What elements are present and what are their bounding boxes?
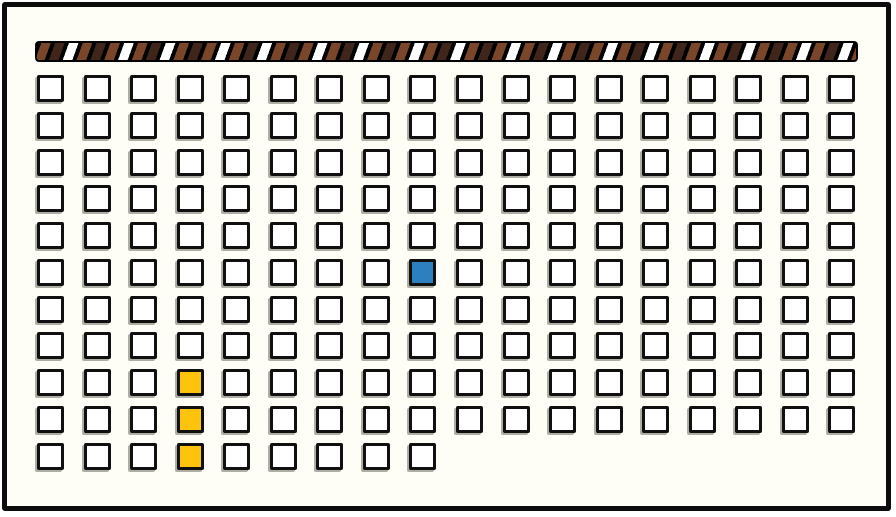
grid-cell[interactable]: [177, 296, 204, 323]
grid-cell[interactable]: [456, 75, 483, 102]
grid-cell[interactable]: [735, 112, 762, 139]
grid-cell[interactable]: [735, 222, 762, 249]
grid-cell[interactable]: [223, 332, 250, 359]
grid-cell[interactable]: [642, 222, 669, 249]
grid-cell[interactable]: [549, 222, 576, 249]
grid-cell[interactable]: [782, 332, 809, 359]
grid-cell[interactable]: [270, 185, 297, 212]
grid-cell[interactable]: [270, 259, 297, 286]
grid-cell[interactable]: [596, 112, 623, 139]
grid-cell[interactable]: [735, 75, 762, 102]
grid-cell[interactable]: [828, 296, 855, 323]
grid-cell[interactable]: [409, 406, 436, 433]
grid-cell[interactable]: [782, 406, 809, 433]
grid-cell[interactable]: [363, 149, 390, 176]
grid-cell[interactable]: [456, 149, 483, 176]
grid-cell[interactable]: [223, 259, 250, 286]
grid-cell[interactable]: [503, 222, 530, 249]
grid-cell[interactable]: [270, 296, 297, 323]
grid-cell[interactable]: [37, 112, 64, 139]
grid-cell[interactable]: [596, 369, 623, 396]
grid-cell[interactable]: [735, 259, 762, 286]
grid-cell[interactable]: [130, 149, 157, 176]
grid-cell[interactable]: [223, 185, 250, 212]
grid-cell[interactable]: [37, 369, 64, 396]
grid-cell[interactable]: [503, 75, 530, 102]
grid-cell[interactable]: [503, 185, 530, 212]
grid-cell[interactable]: [223, 406, 250, 433]
grid-cell[interactable]: [363, 75, 390, 102]
grid-cell[interactable]: [549, 259, 576, 286]
grid-cell[interactable]: [223, 443, 250, 470]
grid-cell[interactable]: [735, 406, 762, 433]
grid-cell[interactable]: [223, 222, 250, 249]
grid-cell[interactable]: [642, 112, 669, 139]
grid-cell[interactable]: [828, 332, 855, 359]
grid-cell[interactable]: [37, 443, 64, 470]
grid-cell[interactable]: [316, 332, 343, 359]
grid-cell[interactable]: [503, 149, 530, 176]
grid-cell[interactable]: [456, 332, 483, 359]
grid-cell[interactable]: [828, 112, 855, 139]
grid-cell[interactable]: [177, 149, 204, 176]
grid-cell[interactable]: [549, 149, 576, 176]
yellow-cell[interactable]: [177, 369, 204, 396]
grid-cell[interactable]: [130, 222, 157, 249]
grid-cell[interactable]: [84, 332, 111, 359]
grid-cell[interactable]: [316, 406, 343, 433]
grid-cell[interactable]: [177, 75, 204, 102]
grid-cell[interactable]: [456, 259, 483, 286]
grid-cell[interactable]: [782, 369, 809, 396]
grid-cell[interactable]: [503, 259, 530, 286]
grid-cell[interactable]: [642, 296, 669, 323]
grid-cell[interactable]: [223, 112, 250, 139]
yellow-cell[interactable]: [177, 406, 204, 433]
grid-cell[interactable]: [223, 296, 250, 323]
grid-cell[interactable]: [130, 332, 157, 359]
grid-cell[interactable]: [130, 185, 157, 212]
grid-cell[interactable]: [37, 149, 64, 176]
grid-cell[interactable]: [409, 369, 436, 396]
grid-cell[interactable]: [270, 406, 297, 433]
grid-cell[interactable]: [596, 259, 623, 286]
grid-cell[interactable]: [84, 406, 111, 433]
grid-cell[interactable]: [642, 406, 669, 433]
grid-cell[interactable]: [363, 332, 390, 359]
grid-cell[interactable]: [689, 149, 716, 176]
grid-cell[interactable]: [84, 259, 111, 286]
grid-cell[interactable]: [642, 185, 669, 212]
grid-cell[interactable]: [363, 406, 390, 433]
grid-cell[interactable]: [689, 332, 716, 359]
grid-cell[interactable]: [549, 406, 576, 433]
grid-cell[interactable]: [735, 185, 762, 212]
grid-cell[interactable]: [503, 369, 530, 396]
grid-cell[interactable]: [689, 259, 716, 286]
grid-cell[interactable]: [689, 112, 716, 139]
grid-cell[interactable]: [735, 369, 762, 396]
grid-cell[interactable]: [735, 332, 762, 359]
grid-cell[interactable]: [689, 222, 716, 249]
grid-cell[interactable]: [828, 369, 855, 396]
grid-cell[interactable]: [782, 259, 809, 286]
grid-cell[interactable]: [130, 443, 157, 470]
grid-cell[interactable]: [130, 112, 157, 139]
grid-cell[interactable]: [84, 149, 111, 176]
grid-cell[interactable]: [409, 296, 436, 323]
grid-cell[interactable]: [177, 332, 204, 359]
grid-cell[interactable]: [84, 112, 111, 139]
grid-cell[interactable]: [735, 296, 762, 323]
grid-cell[interactable]: [735, 149, 762, 176]
blue-cell[interactable]: [409, 259, 436, 286]
grid-cell[interactable]: [37, 332, 64, 359]
grid-cell[interactable]: [596, 185, 623, 212]
grid-cell[interactable]: [37, 259, 64, 286]
grid-cell[interactable]: [37, 75, 64, 102]
grid-cell[interactable]: [363, 259, 390, 286]
page: [0, 0, 896, 517]
grid-cell[interactable]: [84, 443, 111, 470]
grid-cell[interactable]: [642, 75, 669, 102]
grid-cell[interactable]: [503, 112, 530, 139]
grid-cell[interactable]: [270, 222, 297, 249]
grid-cell[interactable]: [549, 112, 576, 139]
grid-cell[interactable]: [316, 259, 343, 286]
grid-cell[interactable]: [689, 406, 716, 433]
grid-cell[interactable]: [270, 75, 297, 102]
grid-cell[interactable]: [270, 149, 297, 176]
grid-cell[interactable]: [596, 296, 623, 323]
grid-cell[interactable]: [456, 296, 483, 323]
grid-cell[interactable]: [409, 149, 436, 176]
grid-cell[interactable]: [84, 185, 111, 212]
grid-cell[interactable]: [316, 112, 343, 139]
grid-cell[interactable]: [456, 406, 483, 433]
grid-cell[interactable]: [828, 222, 855, 249]
grid-cell[interactable]: [130, 369, 157, 396]
grid-cell[interactable]: [549, 185, 576, 212]
grid-cell[interactable]: [130, 406, 157, 433]
grid-cell[interactable]: [596, 75, 623, 102]
grid-cell[interactable]: [828, 185, 855, 212]
grid-cell[interactable]: [177, 112, 204, 139]
grid-cell[interactable]: [549, 332, 576, 359]
grid-cell[interactable]: [37, 406, 64, 433]
grid-cell[interactable]: [223, 149, 250, 176]
grid-cell[interactable]: [828, 149, 855, 176]
grid-cell[interactable]: [782, 149, 809, 176]
grid-cell[interactable]: [84, 222, 111, 249]
grid-cell[interactable]: [828, 406, 855, 433]
grid-cell[interactable]: [270, 112, 297, 139]
grid-cell[interactable]: [316, 149, 343, 176]
grid-cell[interactable]: [503, 406, 530, 433]
grid-cell[interactable]: [549, 296, 576, 323]
grid-cell[interactable]: [782, 296, 809, 323]
grid-cell[interactable]: [689, 369, 716, 396]
grid-cell[interactable]: [130, 296, 157, 323]
grid-cell[interactable]: [37, 185, 64, 212]
grid-cell[interactable]: [177, 259, 204, 286]
grid-cell[interactable]: [270, 443, 297, 470]
cell-grid: [0, 0, 896, 517]
grid-cell[interactable]: [363, 369, 390, 396]
grid-cell[interactable]: [596, 406, 623, 433]
grid-cell[interactable]: [177, 222, 204, 249]
grid-cell[interactable]: [596, 222, 623, 249]
grid-cell[interactable]: [456, 369, 483, 396]
grid-cell[interactable]: [689, 296, 716, 323]
grid-cell[interactable]: [828, 259, 855, 286]
grid-cell[interactable]: [270, 369, 297, 396]
grid-cell[interactable]: [316, 369, 343, 396]
grid-cell[interactable]: [316, 75, 343, 102]
grid-cell[interactable]: [223, 75, 250, 102]
grid-cell[interactable]: [316, 185, 343, 212]
grid-cell[interactable]: [130, 259, 157, 286]
grid-cell[interactable]: [363, 222, 390, 249]
grid-cell[interactable]: [223, 369, 250, 396]
grid-cell[interactable]: [84, 75, 111, 102]
yellow-cell[interactable]: [177, 443, 204, 470]
grid-cell[interactable]: [782, 75, 809, 102]
grid-cell[interactable]: [782, 185, 809, 212]
grid-cell[interactable]: [456, 185, 483, 212]
grid-cell[interactable]: [456, 112, 483, 139]
grid-cell[interactable]: [316, 222, 343, 249]
grid-cell[interactable]: [549, 75, 576, 102]
grid-cell[interactable]: [596, 149, 623, 176]
grid-cell[interactable]: [642, 332, 669, 359]
grid-cell[interactable]: [316, 296, 343, 323]
grid-cell[interactable]: [363, 296, 390, 323]
grid-cell[interactable]: [782, 222, 809, 249]
grid-cell[interactable]: [363, 443, 390, 470]
grid-cell[interactable]: [503, 332, 530, 359]
grid-cell[interactable]: [130, 75, 157, 102]
grid-cell[interactable]: [37, 296, 64, 323]
grid-cell[interactable]: [84, 369, 111, 396]
grid-cell[interactable]: [409, 443, 436, 470]
grid-cell[interactable]: [642, 259, 669, 286]
grid-cell[interactable]: [828, 75, 855, 102]
grid-cell[interactable]: [409, 222, 436, 249]
grid-cell[interactable]: [549, 369, 576, 396]
grid-cell[interactable]: [456, 222, 483, 249]
grid-cell[interactable]: [409, 332, 436, 359]
grid-cell[interactable]: [596, 332, 623, 359]
grid-cell[interactable]: [642, 369, 669, 396]
grid-cell[interactable]: [316, 443, 343, 470]
grid-cell[interactable]: [642, 149, 669, 176]
grid-cell[interactable]: [363, 185, 390, 212]
grid-cell[interactable]: [503, 296, 530, 323]
grid-cell[interactable]: [689, 185, 716, 212]
grid-cell[interactable]: [689, 75, 716, 102]
grid-cell[interactable]: [84, 296, 111, 323]
grid-cell[interactable]: [409, 75, 436, 102]
grid-cell[interactable]: [409, 185, 436, 212]
grid-cell[interactable]: [363, 112, 390, 139]
grid-cell[interactable]: [270, 332, 297, 359]
grid-cell[interactable]: [409, 112, 436, 139]
grid-cell[interactable]: [782, 112, 809, 139]
grid-cell[interactable]: [177, 185, 204, 212]
grid-cell[interactable]: [37, 222, 64, 249]
